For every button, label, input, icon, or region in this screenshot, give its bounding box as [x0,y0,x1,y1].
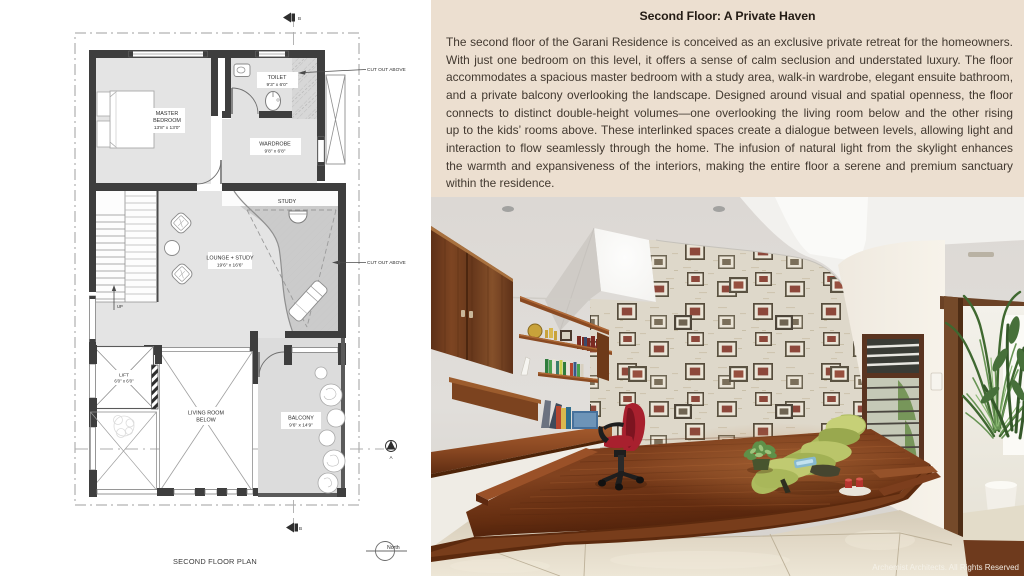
svg-text:9'6" x 14'9": 9'6" x 14'9" [289,423,313,429]
svg-text:A: A [389,455,393,460]
svg-text:MASTER: MASTER [156,111,179,117]
svg-text:B: B [298,16,301,21]
svg-text:STUDY: STUDY [278,199,297,205]
svg-text:UP: UP [117,304,123,309]
svg-text:19'6" x 16'6": 19'6" x 16'6" [217,263,244,269]
svg-text:9'3" x 6'0": 9'3" x 6'0" [267,82,288,88]
svg-text:BELOW: BELOW [196,418,216,424]
svg-text:9'8" x 6'8": 9'8" x 6'8" [265,149,286,155]
svg-text:BEDROOM: BEDROOM [153,118,181,124]
svg-text:LOUNGE + STUDY: LOUNGE + STUDY [206,256,254,262]
svg-text:WARDROBE: WARDROBE [259,142,291,148]
svg-text:LIVING ROOM: LIVING ROOM [188,411,224,417]
svg-text:TOILET: TOILET [268,75,287,81]
svg-text:Archemist Architects. All Righ: Archemist Architects. All Rights Reserve… [872,563,1019,572]
svg-text:BALCONY: BALCONY [288,416,314,422]
svg-text:CUT OUT ABOVE: CUT OUT ABOVE [367,260,406,266]
svg-text:North: North [387,545,400,551]
svg-text:SECOND FLOOR PLAN: SECOND FLOOR PLAN [173,557,257,566]
svg-text:B: B [299,526,302,531]
svg-text:6'0" x 6'0": 6'0" x 6'0" [114,379,134,384]
svg-text:13'8" x 13'0": 13'8" x 13'0" [154,125,181,131]
svg-text:CUT OUT ABOVE: CUT OUT ABOVE [367,67,406,73]
